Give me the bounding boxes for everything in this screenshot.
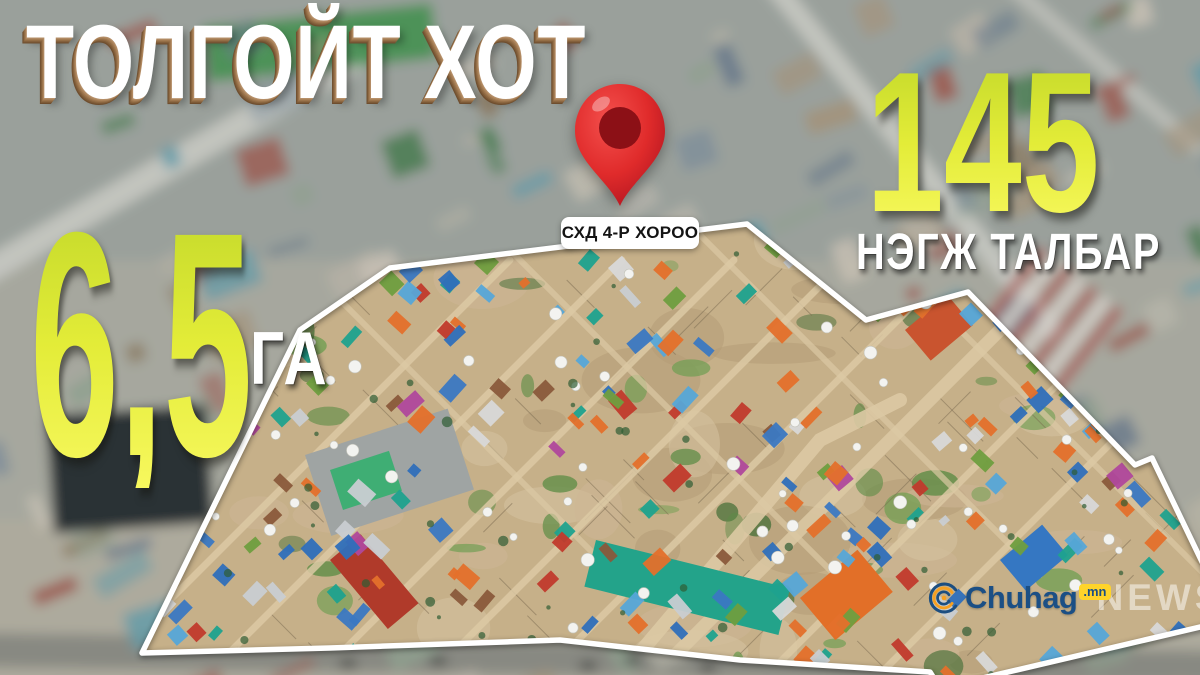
- news-graphic-canvas: ТОЛГОЙТ ХОТ 6,5 ГА 145 НЭГЖ ТАЛБАР СХД 4…: [0, 0, 1200, 675]
- aerial-map: [0, 0, 1200, 675]
